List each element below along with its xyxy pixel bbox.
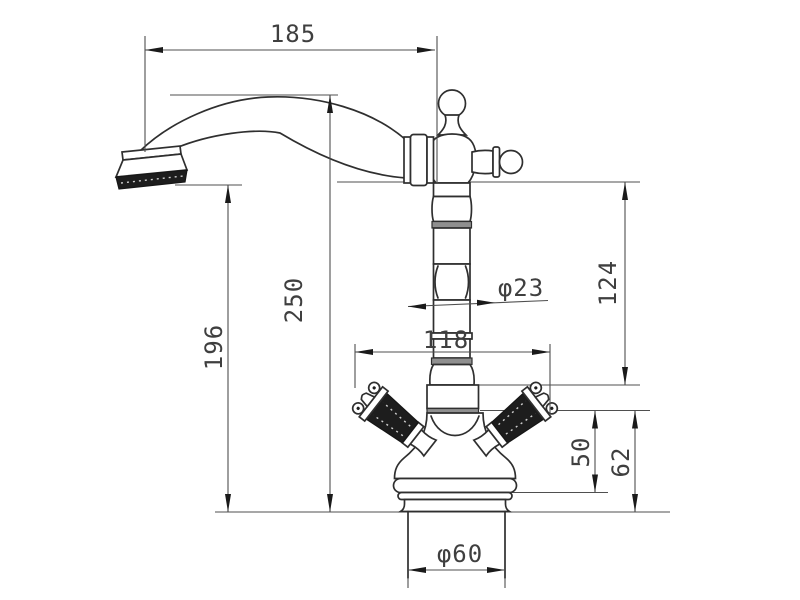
dim-62-label: 62 (607, 447, 635, 478)
dim-base-diameter: φ60 (408, 540, 505, 588)
dim-50-arrow-bottom (592, 475, 598, 493)
column-gray-band-1 (432, 222, 472, 229)
faucet-head (404, 90, 523, 186)
spout-outlet-cap (116, 146, 187, 189)
dim-60-label: φ60 (437, 540, 483, 568)
dim-collar-height: 50 (567, 411, 598, 493)
drawing-page: 185 250 196 124 φ23 (0, 0, 800, 600)
base-neck (401, 500, 510, 512)
dim-196-label: 196 (200, 324, 228, 370)
dim-overall-height: 250 (280, 95, 333, 512)
base-ring-2 (398, 493, 512, 500)
dim-60-arrow-left (408, 567, 426, 573)
column-segment-7 (430, 365, 474, 386)
dim-60-arrow-right (487, 567, 505, 573)
column-segment-3 (434, 228, 471, 264)
dim-124-arrow-top (622, 182, 628, 200)
dim-23-arrow-left (408, 304, 426, 310)
side-knob-ball (500, 151, 523, 174)
column-segment-2 (432, 197, 472, 222)
technical-drawing-canvas: 185 250 196 124 φ23 (0, 0, 800, 600)
column-segment-4 (434, 264, 471, 300)
dim-62-arrow-bottom (632, 494, 638, 512)
dim-118-arrow-right (532, 349, 550, 355)
dim-250-arrow-bottom (327, 494, 333, 512)
dim-124-label: 124 (594, 260, 622, 306)
dim-50-arrow-top (592, 411, 598, 429)
dim-124-arrow-bottom (622, 367, 628, 385)
column-segment-1 (434, 183, 471, 197)
dim-196-arrow-bottom (225, 494, 231, 512)
faucet-object (116, 90, 560, 578)
spout-collar-ring-2 (411, 135, 428, 186)
dim-50-label: 50 (567, 437, 595, 468)
dim-spout-reach: 185 (145, 20, 437, 183)
dim-185-arrow-right (417, 47, 435, 53)
dim-196-arrow-top (225, 185, 231, 203)
dim-185-arrow-left (145, 47, 163, 53)
head-body (428, 134, 476, 183)
spout-collar-ring-3 (427, 137, 434, 183)
head-neck (438, 115, 466, 135)
dim-185-label: 185 (270, 20, 316, 48)
spout-inner-curve (176, 131, 406, 178)
dim-upper-body-height: 124 (594, 182, 628, 385)
dim-62-arrow-top (632, 411, 638, 429)
column-gray-band-2 (432, 358, 473, 365)
faucet-column (427, 183, 479, 413)
dim-body-base-height: 62 (607, 411, 638, 513)
base-ring-1 (394, 479, 517, 493)
spout-outer-curve (140, 97, 406, 151)
side-knob-stem (472, 150, 493, 173)
dim-250-label: 250 (280, 277, 308, 323)
head-ball-finial (439, 90, 466, 117)
side-knob-ring (493, 147, 500, 177)
dim-118-label: 118 (423, 326, 469, 354)
dim-23-label: φ23 (498, 274, 544, 302)
dim-spout-outlet-height: 196 (200, 185, 231, 512)
column-block (427, 385, 479, 409)
spout-collar-ring-1 (404, 137, 411, 183)
dim-118-arrow-left (355, 349, 373, 355)
dim-column-diameter: φ23 (408, 274, 548, 310)
dim-23-arrow-right (477, 300, 495, 306)
